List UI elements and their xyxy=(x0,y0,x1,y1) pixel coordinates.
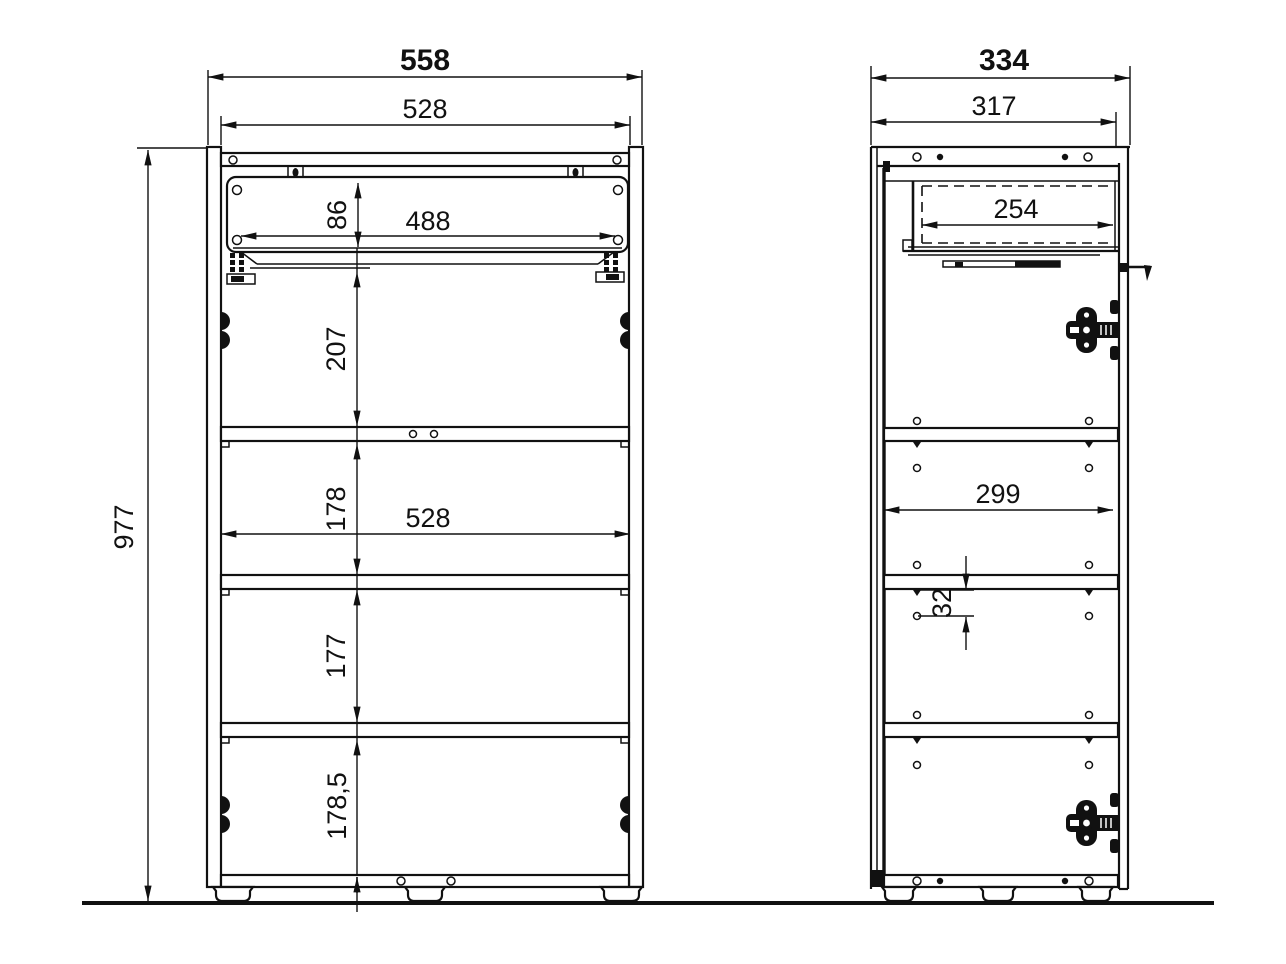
dim-system-hole-offset: 32 xyxy=(927,588,957,618)
shelf-1 xyxy=(221,427,629,447)
side-view: 334 317 254 299 32 xyxy=(871,44,1152,901)
dim-drawer-inner-width: 488 xyxy=(405,206,450,236)
front-dimensions: 558 528 86 488 207 178 528 177 1 xyxy=(109,44,642,912)
dim-inner-width-middle: 528 xyxy=(405,503,450,533)
front-right-side-panel xyxy=(629,147,643,887)
door-handle xyxy=(1119,263,1152,281)
cabinet-drawing: 558 528 86 488 207 178 528 177 1 xyxy=(0,0,1286,964)
shelf-3 xyxy=(221,723,629,743)
back-panel-bracket xyxy=(883,161,890,172)
bottom-panel-front xyxy=(221,875,629,887)
side-shelf-2 xyxy=(884,575,1118,589)
side-shelf-1 xyxy=(884,428,1118,441)
dim-third-compartment-height: 177 xyxy=(321,633,351,678)
dim-drawer-opening-height: 86 xyxy=(322,200,352,230)
dim-overall-width: 558 xyxy=(400,44,450,77)
dim-depth-without-handle: 317 xyxy=(971,91,1016,121)
technical-drawing-page: 558 528 86 488 207 178 528 177 1 xyxy=(0,0,1286,964)
dim-overall-height: 977 xyxy=(109,504,139,549)
dim-drawer-inner-depth: 254 xyxy=(993,194,1038,224)
bottom-panel-side xyxy=(872,870,1118,887)
shelf-2 xyxy=(221,575,629,595)
dim-inner-width-top: 528 xyxy=(402,94,447,124)
front-top-rail xyxy=(221,153,629,166)
hinge-bosses xyxy=(221,312,629,833)
drawer-slide-right xyxy=(596,252,624,282)
front-left-side-panel xyxy=(207,147,221,887)
dim-bottom-compartment-height: 178,5 xyxy=(322,772,352,840)
front-view: 558 528 86 488 207 178 528 177 1 xyxy=(109,44,643,912)
dim-top-compartment-height: 207 xyxy=(321,326,351,371)
side-feet xyxy=(882,887,1113,901)
front-feet xyxy=(213,887,642,901)
hinge-top xyxy=(1066,300,1119,360)
side-shelf-3 xyxy=(884,723,1118,737)
dim-second-compartment-height: 178 xyxy=(321,486,351,531)
top-panel-screw-holes xyxy=(913,153,1092,161)
dim-inner-depth: 299 xyxy=(975,479,1020,509)
dim-overall-depth: 334 xyxy=(979,44,1029,77)
hinge-bottom xyxy=(1066,793,1119,853)
